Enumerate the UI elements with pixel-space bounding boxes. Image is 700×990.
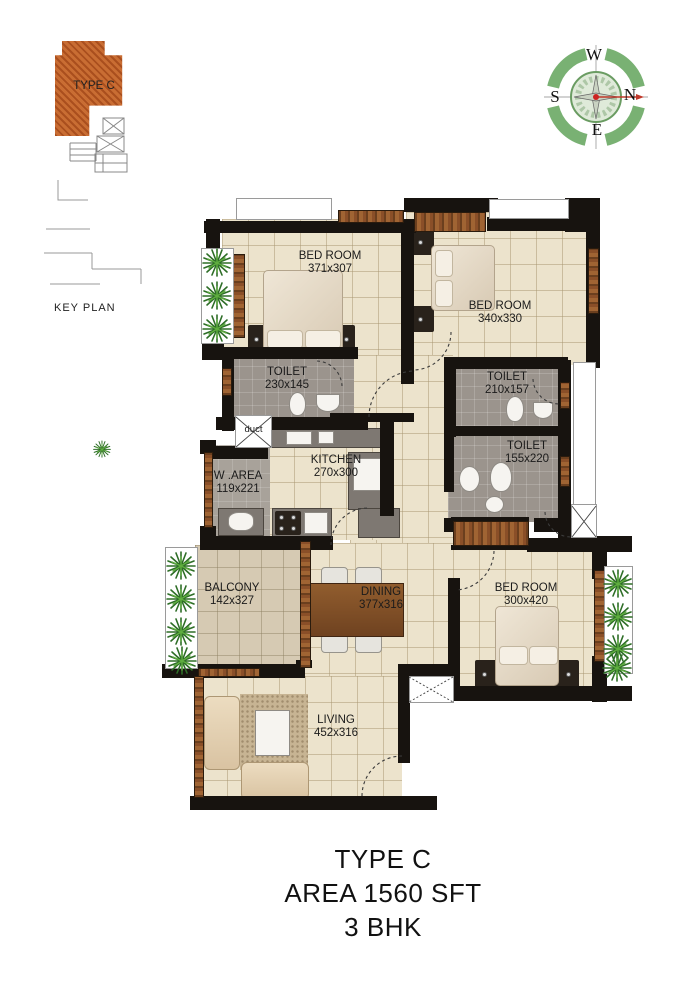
balcony-slider-frame xyxy=(300,541,311,668)
compass-west-label: W xyxy=(584,45,604,65)
bed3-pillow-right xyxy=(529,646,558,665)
kitchen-drainer xyxy=(318,431,334,444)
toilet2-label: TOILET 210x157 xyxy=(485,371,529,397)
room-dims: 119x221 xyxy=(214,483,263,496)
sofa-vertical xyxy=(204,696,240,770)
toilet3-basin xyxy=(485,496,504,513)
bedroom2-wardrobe xyxy=(414,212,486,232)
burner xyxy=(291,515,296,520)
wall xyxy=(380,420,394,516)
wall xyxy=(527,538,560,552)
kitchen-appliance xyxy=(304,512,328,534)
dining-label: DINING 377x316 xyxy=(359,586,403,612)
service-shaft xyxy=(573,362,596,505)
duct-label: duct xyxy=(237,424,270,435)
passage-washbasin xyxy=(459,466,480,492)
wall xyxy=(444,430,454,492)
wall xyxy=(401,219,414,384)
work-area-window xyxy=(204,452,213,528)
room-name: TOILET xyxy=(485,371,529,384)
wall xyxy=(448,686,632,701)
wall xyxy=(487,217,575,231)
key-plan-outline xyxy=(44,118,141,284)
wall xyxy=(448,578,460,688)
bed3-pillow-left xyxy=(499,646,528,665)
setback-notch xyxy=(236,198,332,220)
kitchen-label: KITCHEN 270x300 xyxy=(311,454,361,480)
wall xyxy=(216,347,358,359)
planter-box xyxy=(201,248,234,344)
bed2-pillow-bottom xyxy=(435,280,453,307)
toilet1-basin xyxy=(316,394,340,412)
room-name: BED ROOM xyxy=(469,300,532,313)
planter-box xyxy=(604,566,633,674)
living-label: LIVING 452x316 xyxy=(314,714,358,740)
lift-shaft-box xyxy=(571,504,597,538)
bedroom1-label: BED ROOM 371x307 xyxy=(299,250,362,276)
plan-type-title: TYPE C xyxy=(205,842,561,876)
bedroom2-window xyxy=(588,248,599,314)
room-dims: 340x330 xyxy=(469,313,532,326)
work-area-label: W .AREA 119x221 xyxy=(214,470,263,496)
living-window xyxy=(194,676,204,798)
key-plan-unit-label: TYPE C xyxy=(66,80,122,92)
bedroom1-window xyxy=(233,254,245,338)
bedroom3-label: BED ROOM 300x420 xyxy=(495,582,558,608)
bedroom2-label: BED ROOM 340x330 xyxy=(469,300,532,326)
bed2-knob-top xyxy=(418,240,423,245)
room-dims: 371x307 xyxy=(299,263,362,276)
room-name: KITCHEN xyxy=(311,454,361,467)
toilet2-basin xyxy=(533,402,553,419)
toilet1-wc xyxy=(289,392,306,416)
room-dims: 452x316 xyxy=(314,727,358,740)
key-plan-caption: KEY PLAN xyxy=(54,302,144,314)
sofa-horizontal xyxy=(241,762,309,800)
work-area-sink xyxy=(228,512,254,531)
bedroom3-wardrobe xyxy=(453,521,529,546)
plan-area-text: AREA 1560 SFT xyxy=(205,876,561,910)
room-dims: 210x157 xyxy=(485,384,529,397)
bed1-knob-left xyxy=(254,337,259,342)
setback-notch xyxy=(489,199,569,219)
compass-north-label: N xyxy=(620,85,640,105)
room-name: BALCONY xyxy=(205,582,260,595)
toilet3-wc xyxy=(490,462,512,492)
room-dims: 300x420 xyxy=(495,595,558,608)
wall xyxy=(444,357,456,437)
wall xyxy=(200,536,333,550)
toilet1-window xyxy=(222,368,232,396)
burner xyxy=(291,526,296,531)
balcony-slider-bottom xyxy=(198,668,260,677)
toilet1-label: TOILET 230x145 xyxy=(265,366,309,392)
wall xyxy=(446,357,568,369)
bed2-pillow-top xyxy=(435,250,453,277)
room-name: DINING xyxy=(359,586,403,599)
wall xyxy=(446,426,566,436)
room-name: TOILET xyxy=(505,440,549,453)
room-name: BED ROOM xyxy=(495,582,558,595)
floor-plan-sheet: TYPE C KEY PLAN W N E S xyxy=(0,0,700,990)
burner xyxy=(279,526,284,531)
entry-shaft-box xyxy=(409,676,454,703)
bed1-knob-right xyxy=(344,337,349,342)
bed2-knob-bottom xyxy=(418,317,423,322)
room-name: TOILET xyxy=(265,366,309,379)
compass-east-label: E xyxy=(587,120,607,140)
toilet2-window xyxy=(560,382,570,409)
room-dims: 377x316 xyxy=(359,599,403,612)
toilet3-label: TOILET 155x220 xyxy=(505,440,549,466)
room-dims: 230x145 xyxy=(265,379,309,392)
wall xyxy=(190,796,437,810)
plan-title-block: TYPE C AREA 1560 SFT 3 BHK xyxy=(205,842,561,944)
room-name: LIVING xyxy=(314,714,358,727)
room-name: BED ROOM xyxy=(299,250,362,263)
balcony-label: BALCONY 142x327 xyxy=(205,582,260,608)
coffee-table xyxy=(255,710,290,756)
wall xyxy=(404,198,498,212)
plan-config-text: 3 BHK xyxy=(205,910,561,944)
planter-box xyxy=(165,547,198,669)
room-name: W .AREA xyxy=(214,470,263,483)
wall xyxy=(534,518,564,532)
room-dims: 142x327 xyxy=(205,595,260,608)
kitchen-sink xyxy=(286,431,312,445)
room-dims: 155x220 xyxy=(505,453,549,466)
room-dims: 270x300 xyxy=(311,467,361,480)
bedroom1-wardrobe xyxy=(338,210,404,223)
bed3-knob-left xyxy=(482,672,487,677)
bed3-knob-right xyxy=(566,672,571,677)
compass-south-label: S xyxy=(545,87,565,107)
toilet3-window xyxy=(560,456,570,487)
toilet2-wc xyxy=(506,396,524,422)
burner xyxy=(279,515,284,520)
